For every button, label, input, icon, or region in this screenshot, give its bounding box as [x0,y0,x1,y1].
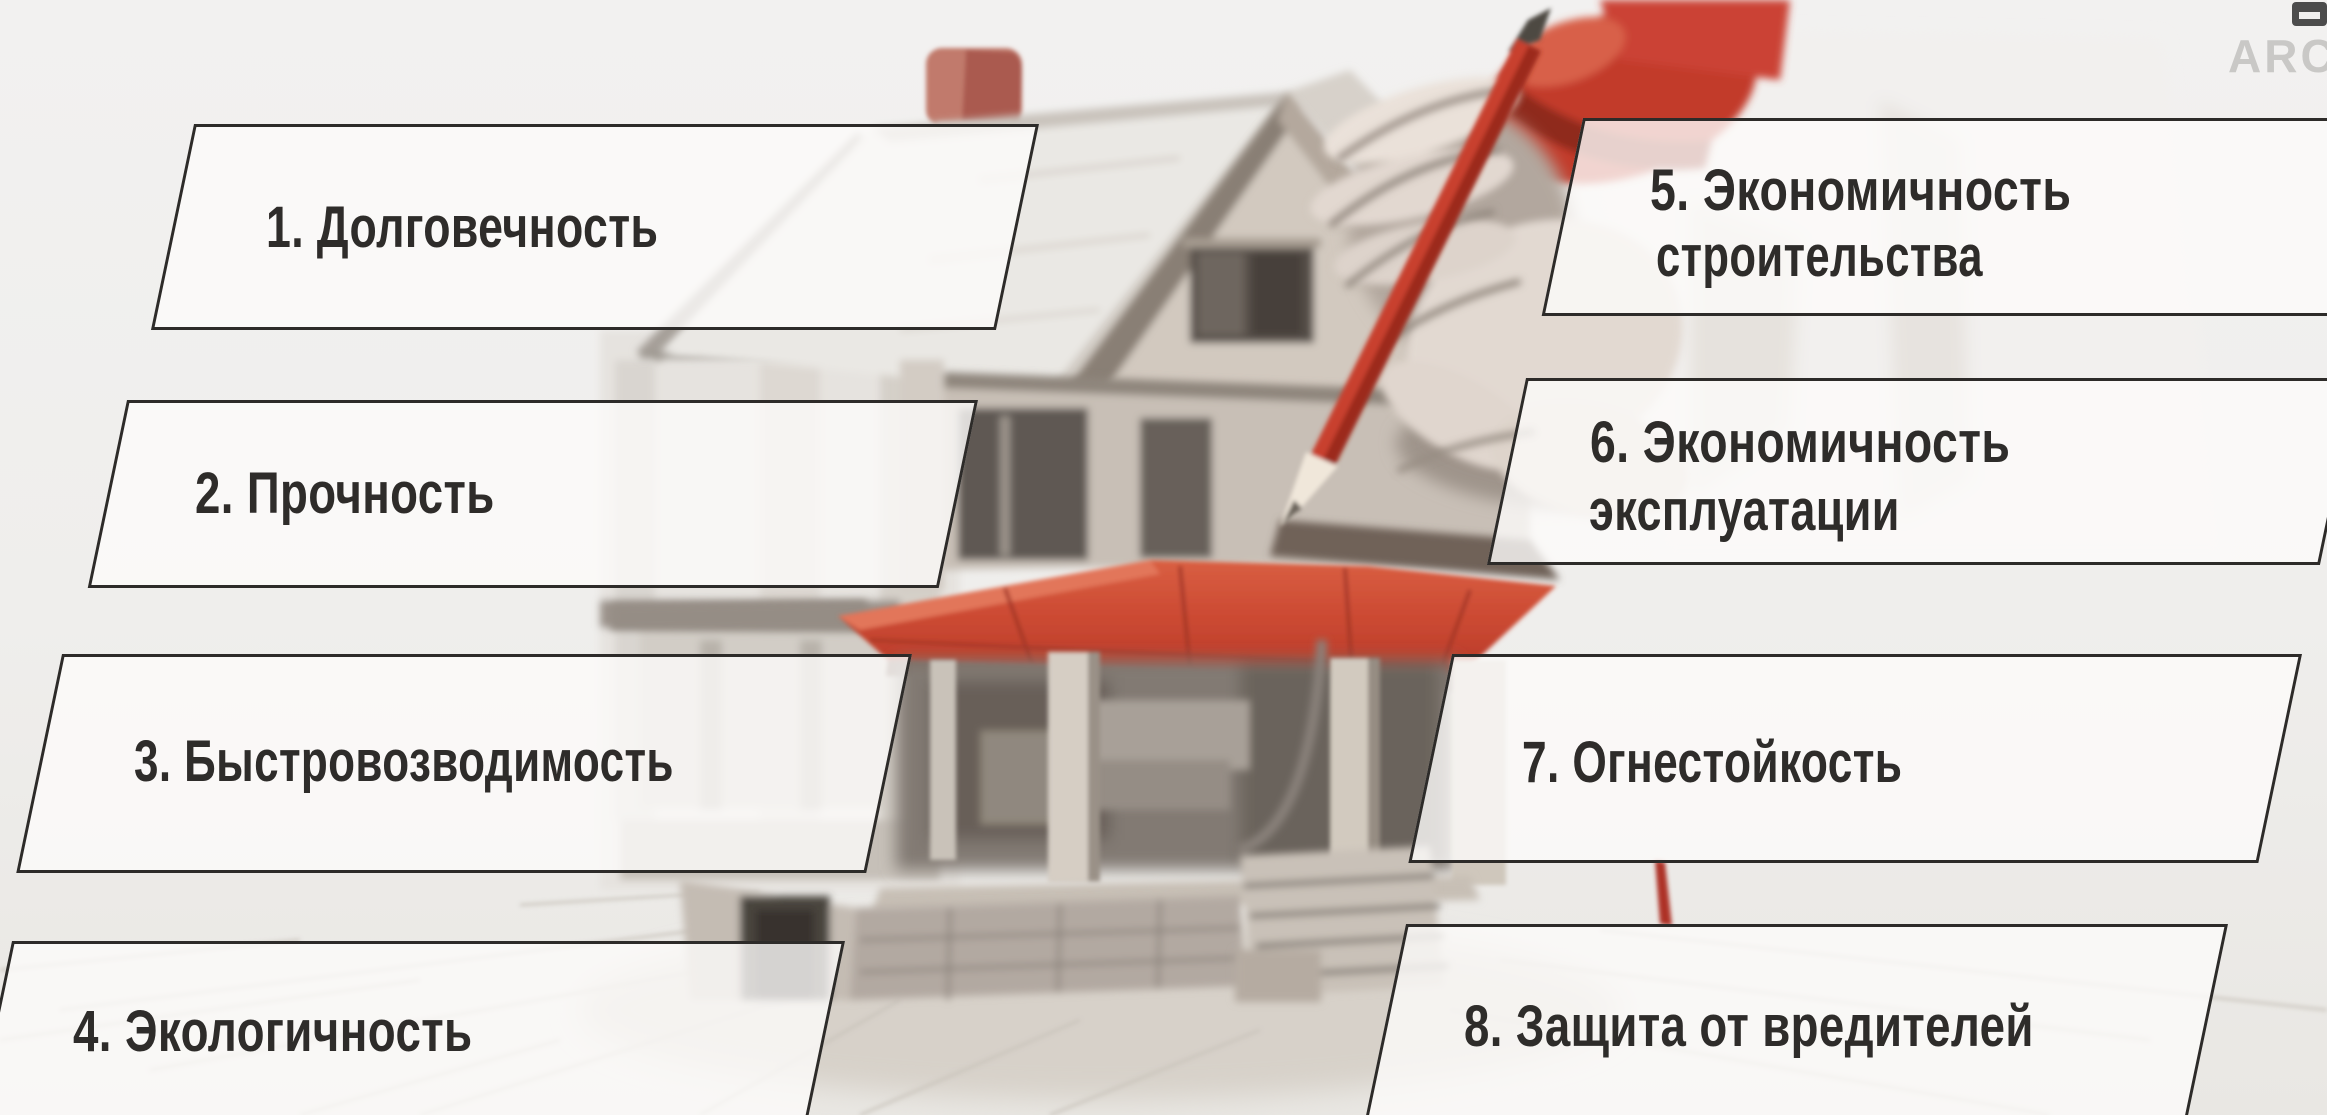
svg-text:ARC: ARC [2228,30,2327,82]
